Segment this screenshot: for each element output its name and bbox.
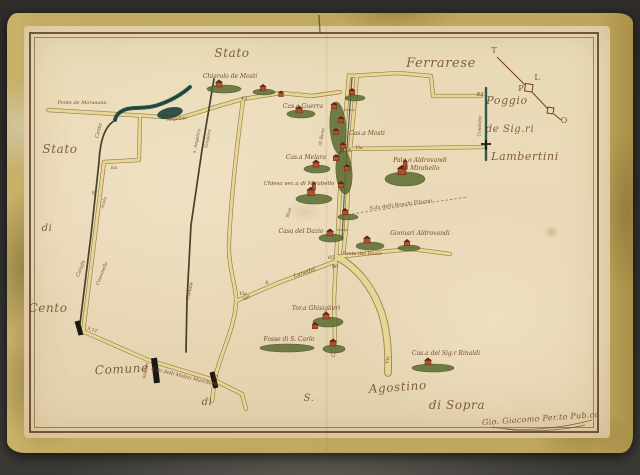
map-drawing: TLPO StatoFerrareseStatodiCentoComunediS… — [0, 0, 640, 475]
house-icon — [363, 236, 371, 244]
map-label-cassanello: Cassanello — [95, 261, 110, 286]
vegetation — [207, 85, 454, 372]
map-label-di-left: di — [42, 223, 53, 234]
map-label-casa-del-dazio: Casa del Dazio — [278, 228, 323, 235]
map-label-stato-left: Stato — [42, 142, 77, 156]
map-label-poggio: Poggio — [485, 94, 527, 107]
map-label-letter-b: b — [265, 280, 268, 286]
map-label-fosse-di-s-carlo: Fosse di S. Carlo — [262, 336, 314, 343]
house-icon — [322, 312, 330, 320]
compass-letter-P: P — [518, 84, 524, 93]
compass-letter-O: O — [561, 116, 568, 125]
map-label-torre-ghisiglieri: Tor.a Ghisiglieri — [292, 305, 340, 312]
map-label-palazzo-aldrovandi-line1: Palg.o Aldrovandi — [392, 157, 447, 164]
map-label-ferrarese: Ferrarese — [405, 56, 476, 71]
map-label-casa-rinaldi: Cas.a del Sig.r Rinaldi — [412, 350, 480, 357]
map-label-via-south: Via — [385, 356, 392, 364]
map-label-di-reno: di Reno — [318, 127, 327, 145]
photo-background: TLPO StatoFerrareseStatodiCentoComunediS… — [0, 0, 640, 475]
roads — [48, 73, 483, 409]
map-label-agostino: Agostino — [367, 378, 427, 396]
vegetation-patch — [345, 95, 365, 101]
map-label-cento: Cento — [28, 301, 67, 315]
house-icon — [215, 80, 223, 88]
top-edge-tear — [319, 15, 320, 33]
map-label-casa-melara: Cas.a Melara — [286, 154, 327, 161]
map-label-s-angelica: s. Angelica — [191, 128, 202, 154]
map-label-comune: Comune — [94, 361, 149, 378]
map-label-num-80: 80 — [332, 264, 339, 270]
map-label-chiesa-vecchia-mirabello: Chiesa vec.a di Mirabello — [264, 181, 335, 187]
map-label-signature: Gio. Giacomo Per.to Pub.co — [482, 410, 600, 427]
map-label-num-43: 43 — [240, 96, 247, 102]
compass-letters: TLPO — [491, 46, 567, 125]
map-label-canale-mid: Canale — [185, 282, 195, 300]
map-label-num-85: 85 — [328, 255, 334, 261]
house-icon — [259, 84, 266, 91]
map-label-di-bottom: di — [202, 397, 213, 408]
map-label-via-near-44: Via — [355, 145, 363, 151]
map-label-de-sigri: de Sig.ri — [486, 124, 535, 135]
vegetation-patch — [412, 364, 454, 372]
vegetation-patch — [260, 344, 314, 352]
compass-letter-L: L — [534, 73, 540, 82]
map-label-ponte-del-dazio: Ponte del Dazio — [341, 251, 382, 257]
map-label-num-83: 83. — [477, 92, 486, 98]
map-label-lambertini: Lambertini — [490, 150, 559, 163]
map-label-riva: Riva — [285, 207, 294, 220]
vegetation-patch — [338, 214, 358, 220]
compass-rose — [497, 57, 561, 120]
map-label-condotto: Condotto — [476, 115, 483, 137]
house-icon — [326, 229, 334, 237]
map-label-strada-ronchi-filzano: S.da delli Ronchi Filzano — [369, 198, 432, 212]
map-label-stato-top: Stato — [214, 46, 249, 60]
map-label-casa-mosti: Cas.a Mosti — [349, 130, 385, 137]
map-label-gonnari-aldrovandi: Gonnari Aldrovandi — [390, 230, 450, 237]
map-label-num-44: 44 — [344, 147, 351, 153]
map-label-di-sopra: di Sopra — [429, 398, 485, 412]
map-label-ponte-de-morasana: Ponte de Morasana — [57, 100, 107, 106]
vegetation-patch — [207, 85, 241, 93]
map-label-via-center: Via — [239, 291, 247, 297]
map-label-palazzo-aldrovandi-line2: di Mirabello — [402, 165, 439, 172]
map-label-via-west: via — [111, 165, 118, 171]
map-label-chiarolo-de-mosti: Chiarolo de Mosti — [203, 73, 257, 80]
house-icon — [403, 239, 410, 246]
house-icon — [424, 358, 432, 366]
map-label-lunedel: Lunedel — [292, 267, 316, 280]
compass-letter-T: T — [491, 46, 497, 55]
canal-angelica — [186, 79, 214, 352]
map-label-casa-guerra: Cas.a Guerra — [283, 103, 324, 110]
map-label-s-bottom: S. — [304, 393, 315, 404]
map-labels: StatoFerrareseStatodiCentoComunediS.Agos… — [28, 46, 599, 427]
